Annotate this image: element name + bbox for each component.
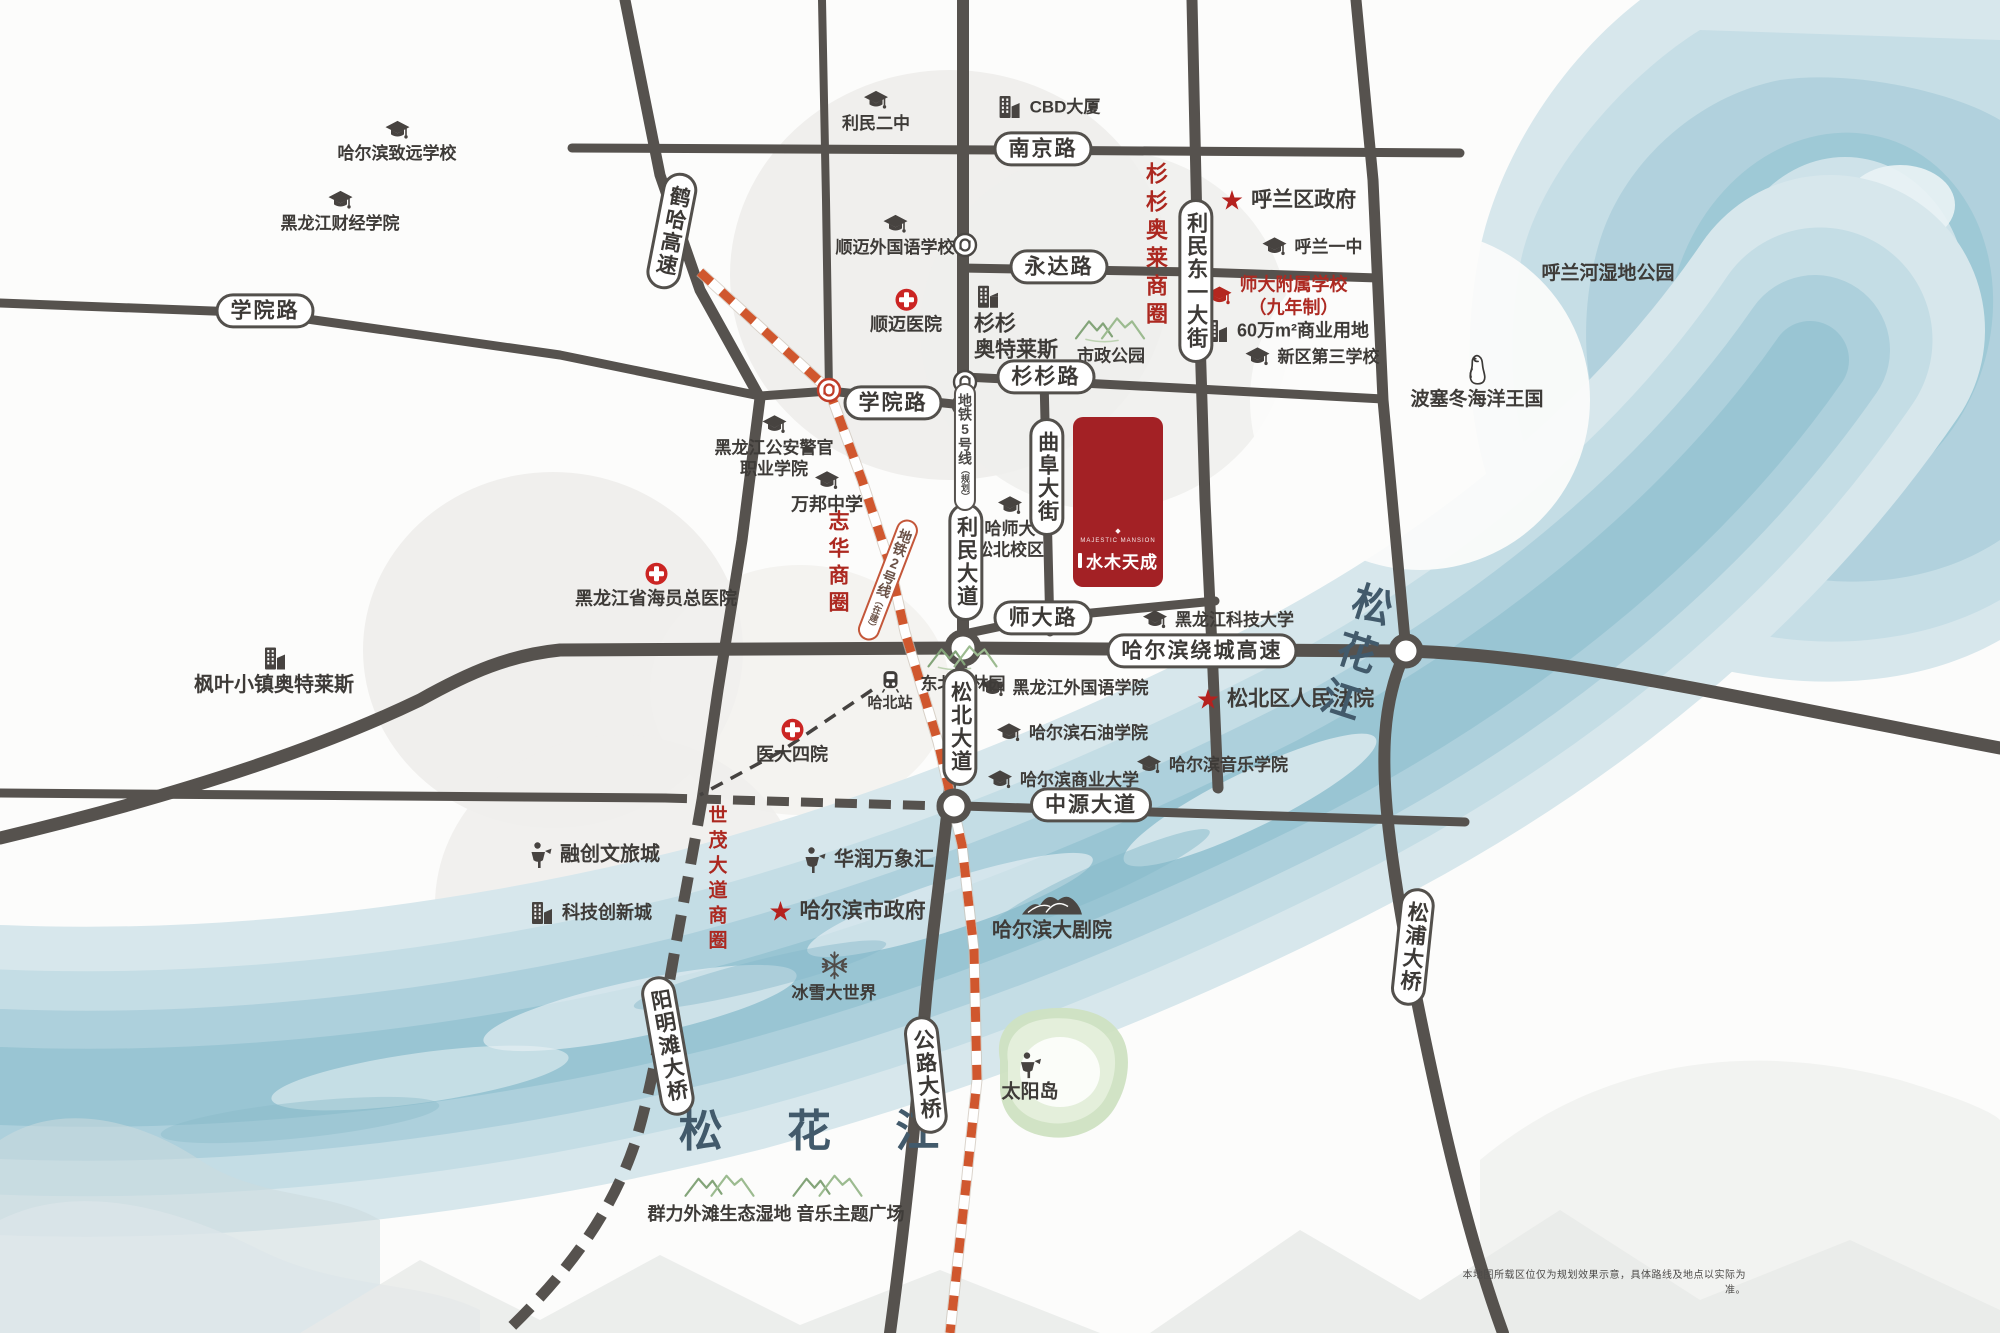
huarun-mixc: 华润万象汇 bbox=[802, 847, 934, 874]
cap-icon bbox=[882, 214, 908, 235]
cap-icon bbox=[863, 90, 889, 111]
hulan-no1-middle-school: 呼兰一中 bbox=[1262, 236, 1363, 257]
limindong-first-street-label: 利民东一大街 bbox=[1178, 199, 1213, 363]
xueyuan-road-east-label: 学院路 bbox=[844, 385, 943, 420]
harbin-petroleum-institute: 哈尔滨石油学院 bbox=[996, 722, 1148, 743]
star-icon: ★ bbox=[1196, 687, 1220, 714]
cap-icon bbox=[1262, 237, 1288, 258]
metro-line2-label: 地铁2号线（在建） bbox=[855, 516, 921, 643]
heha-expressway-label: 鹤哈高速 bbox=[643, 170, 700, 293]
cap-icon bbox=[327, 190, 353, 211]
property-block: ◆ MAJESTIC MANSION 水木天成 bbox=[1073, 417, 1163, 587]
wanbang-middle-school: 万邦中学 bbox=[791, 470, 863, 516]
ride-icon bbox=[528, 842, 553, 869]
shimao-avenue-circle-label: 世茂大道商圈 bbox=[703, 805, 730, 955]
zhihua-circle-label: 志华商圈 bbox=[822, 510, 852, 618]
shanshan-outlet-circle-label: 杉杉奥莱商圈 bbox=[1139, 162, 1171, 330]
hulan-no1-middle-school-label: 呼兰一中 bbox=[1295, 236, 1363, 257]
building-icon bbox=[528, 901, 555, 926]
harbin-zhiyuan-school-label: 哈尔滨致远学校 bbox=[338, 143, 457, 164]
heilongjiang-finance-college-label: 黑龙江财经学院 bbox=[281, 213, 400, 234]
harbin-city-government-label: 哈尔滨市政府 bbox=[800, 899, 926, 925]
shanshan-outlets-label: 杉杉奥特莱斯 bbox=[974, 311, 1058, 364]
map-disclaimer: 本地图所载区位仅为规划效果示意，具体路线及地点以实际为准。 bbox=[1460, 1266, 1746, 1296]
shanshan-outlets: 杉杉奥特莱斯 bbox=[974, 284, 1058, 364]
star-icon: ★ bbox=[768, 899, 792, 926]
property-name: 水木天成 bbox=[1078, 548, 1158, 573]
ride-icon bbox=[802, 847, 827, 874]
commercial-land-600k: 60万m²商业用地 bbox=[1203, 319, 1369, 344]
zhongyuan-avenue-label: 中源大道 bbox=[1030, 787, 1152, 822]
limin-avenue-label: 利民大道 bbox=[948, 503, 983, 621]
cap-icon bbox=[987, 770, 1013, 791]
harbin-music-conservatory: 哈尔滨音乐学院 bbox=[1136, 754, 1288, 775]
harbin-city-government: ★哈尔滨市政府 bbox=[768, 899, 925, 926]
cap-icon bbox=[814, 470, 840, 491]
shanshan-road-label: 杉杉路 bbox=[997, 359, 1096, 394]
shunmai-hospital: 顺迈医院 bbox=[870, 288, 942, 336]
building-icon bbox=[974, 284, 1001, 309]
yongda-road-label: 永达路 bbox=[1010, 249, 1109, 284]
rongchuang-culture-tourism-city-label: 融创文旅城 bbox=[560, 843, 660, 868]
harbin-petroleum-institute-label: 哈尔滨石油学院 bbox=[1029, 722, 1148, 743]
heilongjiang-foreign-studies-college-label: 黑龙江外国语学院 bbox=[1013, 677, 1149, 698]
train-icon bbox=[880, 669, 900, 693]
rongchuang-culture-tourism-city: 融创文旅城 bbox=[528, 842, 660, 869]
building-icon bbox=[996, 95, 1023, 120]
fengye-town-outlets: 枫叶小镇奥特莱斯 bbox=[194, 646, 354, 698]
tech-innovation-city-label: 科技创新城 bbox=[562, 902, 652, 925]
metro-line5-label: 地铁5号线（规划） bbox=[954, 383, 976, 511]
seamen-general-hospital: 黑龙江省海员总医院 bbox=[575, 562, 737, 610]
songhua-river-right-label: 松花江 bbox=[1301, 575, 1403, 736]
ice-snow-world-label: 冰雪大世界 bbox=[792, 982, 877, 1003]
yida-no4-hospital: 医大四院 bbox=[756, 718, 828, 766]
shunmai-foreign-language-school-label: 顺迈外国语学校 bbox=[836, 237, 955, 258]
songpu-bridge-label: 松浦大桥 bbox=[1389, 886, 1436, 1007]
xinqu-no3-school: 新区第三学校 bbox=[1245, 346, 1380, 367]
xinqu-no3-school-label: 新区第三学校 bbox=[1278, 346, 1380, 367]
shida-affiliated-school-label: 师大附属学校（九年制） bbox=[1240, 274, 1348, 319]
tech-innovation-city: 科技创新城 bbox=[528, 901, 652, 926]
harbin-grand-theatre: 哈尔滨大剧院 bbox=[992, 889, 1112, 944]
mountains-icon bbox=[924, 641, 1002, 671]
shunmai-foreign-language-school: 顺迈外国语学校 bbox=[836, 214, 955, 258]
cap-icon bbox=[1245, 347, 1271, 368]
shida-affiliated-school: 师大附属学校（九年制） bbox=[1207, 274, 1348, 319]
ring-expressway-label: 哈尔滨绕城高速 bbox=[1107, 633, 1298, 668]
yangmingtan-bridge-label: 阳明滩大桥 bbox=[638, 974, 697, 1119]
harbin-zhiyuan-school: 哈尔滨致远学校 bbox=[338, 120, 457, 164]
hulan-district-government-label: 呼兰区政府 bbox=[1251, 188, 1356, 214]
cap-icon bbox=[1136, 755, 1162, 776]
yida-no4-hospital-label: 医大四院 bbox=[756, 743, 828, 766]
nanjing-road-label: 南京路 bbox=[994, 131, 1093, 166]
cross-icon bbox=[895, 288, 918, 311]
shida-road-label: 师大路 bbox=[994, 600, 1093, 635]
opera-icon bbox=[1020, 889, 1084, 917]
star-icon: ★ bbox=[1220, 188, 1244, 215]
building-icon bbox=[261, 646, 288, 671]
habei-station-label: 哈北站 bbox=[867, 695, 912, 714]
penguin-icon bbox=[1464, 354, 1490, 386]
labels-layer: 哈尔滨致远学校黑龙江财经学院利民二中顺迈外国语学校黑龙江公安警官职业学院万邦中学… bbox=[0, 0, 2000, 1333]
xueyuan-road-west-label: 学院路 bbox=[216, 293, 315, 328]
sun-island: 太阳岛 bbox=[1001, 1052, 1058, 1105]
heilongjiang-sci-tech-university: 黑龙江科技大学 bbox=[1142, 609, 1294, 630]
poseidon-ocean-kingdom-label: 波塞冬海洋王国 bbox=[1410, 388, 1543, 412]
fengye-town-outlets-label: 枫叶小镇奥特莱斯 bbox=[194, 673, 354, 698]
cap-icon bbox=[761, 414, 787, 435]
cap-icon bbox=[1142, 610, 1168, 631]
hulanhe-wetland-park: 呼兰河湿地公园 bbox=[1541, 262, 1674, 286]
heilongjiang-finance-college: 黑龙江财经学院 bbox=[281, 190, 400, 234]
qunli-wetland-music-plaza: 群力外滩生态湿地 音乐主题广场 bbox=[648, 1171, 905, 1226]
cap-icon bbox=[996, 723, 1022, 744]
commercial-land-600k-label: 60万m²商业用地 bbox=[1237, 320, 1369, 343]
poseidon-ocean-kingdom: 波塞冬海洋王国 bbox=[1410, 354, 1543, 412]
sun-island-label: 太阳岛 bbox=[1001, 1081, 1058, 1105]
huarun-mixc-label: 华润万象汇 bbox=[834, 848, 934, 873]
limin-no2-middle-school: 利民二中 bbox=[842, 90, 910, 134]
songbei-avenue-label: 松北大道 bbox=[942, 668, 977, 786]
cross-icon bbox=[781, 718, 804, 741]
cbd-tower: CBD大厦 bbox=[996, 95, 1101, 120]
qufu-street-label: 曲阜大街 bbox=[1029, 418, 1064, 536]
hulan-district-government: ★呼兰区政府 bbox=[1220, 188, 1356, 215]
snow-icon bbox=[819, 950, 849, 980]
heilongjiang-sci-tech-university-label: 黑龙江科技大学 bbox=[1175, 609, 1294, 630]
shunmai-hospital-label: 顺迈医院 bbox=[870, 313, 942, 336]
ice-snow-world: 冰雪大世界 bbox=[792, 950, 877, 1003]
map-canvas: 哈尔滨致远学校黑龙江财经学院利民二中顺迈外国语学校黑龙江公安警官职业学院万邦中学… bbox=[0, 0, 2000, 1333]
property-ornament: ◆ bbox=[1115, 528, 1120, 535]
habei-station: 哈北站 bbox=[867, 669, 912, 714]
harbin-music-conservatory-label: 哈尔滨音乐学院 bbox=[1169, 754, 1288, 775]
cross-icon bbox=[645, 562, 668, 585]
property-tagline: MAJESTIC MANSION bbox=[1080, 538, 1155, 544]
hulanhe-wetland-park-label: 呼兰河湿地公园 bbox=[1541, 262, 1674, 286]
property-seal-icon bbox=[1078, 553, 1082, 568]
qunli-wetland-music-plaza-label: 群力外滩生态湿地 音乐主题广场 bbox=[648, 1203, 905, 1226]
ride-icon bbox=[1017, 1052, 1042, 1079]
seamen-general-hospital-label: 黑龙江省海员总医院 bbox=[575, 587, 737, 610]
harbin-grand-theatre-label: 哈尔滨大剧院 bbox=[992, 919, 1112, 944]
limin-no2-middle-school-label: 利民二中 bbox=[842, 113, 910, 134]
cap-icon bbox=[384, 120, 410, 141]
cap-icon bbox=[997, 495, 1023, 516]
mountains-wide-icon bbox=[681, 1171, 871, 1201]
cbd-tower-label: CBD大厦 bbox=[1030, 96, 1101, 117]
